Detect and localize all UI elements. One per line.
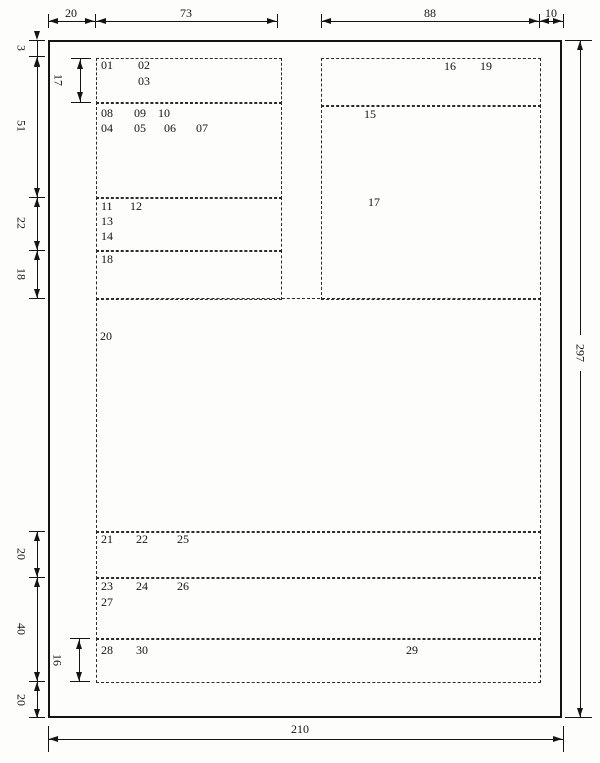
field-15-label: 15 — [364, 108, 376, 121]
tick-mark — [563, 726, 564, 752]
field-box-18 — [96, 250, 282, 300]
arrowhead — [49, 736, 58, 742]
field-25-label: 25 — [177, 533, 189, 546]
tick-mark — [71, 58, 91, 59]
field-09-label: 09 — [134, 107, 146, 120]
arrowhead — [34, 58, 40, 67]
arrowhead — [85, 18, 94, 24]
field-24-label: 24 — [136, 580, 148, 593]
field-box-16-19 — [321, 58, 541, 107]
field-02-label: 02 — [138, 59, 150, 72]
field-01-label: 01 — [101, 59, 113, 72]
field-16-label: 16 — [444, 60, 456, 73]
dim-top-left-column: 73 — [171, 7, 201, 20]
dim-bottom-line — [48, 739, 563, 740]
field-29-label: 29 — [406, 644, 418, 657]
tick-mark — [29, 40, 45, 41]
arrowhead — [34, 289, 40, 298]
field-box-01-03 — [96, 58, 282, 104]
tick-mark — [565, 717, 592, 718]
field-box-20 — [96, 298, 541, 533]
arrowhead — [34, 198, 40, 207]
arrowhead — [77, 92, 83, 101]
field-06-label: 06 — [164, 122, 176, 135]
field-11-label: 11 — [101, 200, 113, 213]
field-23-label: 23 — [101, 580, 113, 593]
dim-left-zone-40: 40 — [15, 623, 28, 635]
field-03-label: 03 — [138, 75, 150, 88]
arrowhead — [577, 708, 583, 717]
arrowhead — [267, 18, 276, 24]
dim-right-page-height: 297 — [574, 344, 587, 362]
arrowhead — [577, 41, 583, 50]
field-12-label: 12 — [130, 200, 142, 213]
field-30-label: 30 — [136, 644, 148, 657]
dim-top-line-right — [321, 21, 563, 22]
dim-right-line-upper — [580, 41, 581, 335]
field-04-label: 04 — [101, 122, 113, 135]
arrowhead — [97, 18, 106, 24]
arrowhead — [34, 682, 40, 691]
field-28-label: 28 — [101, 644, 113, 657]
field-22-label: 22 — [136, 533, 148, 546]
field-07-label: 07 — [196, 122, 208, 135]
dim-top-left-margin: 20 — [56, 7, 86, 20]
arrowhead — [76, 640, 82, 649]
arrowhead — [34, 672, 40, 681]
page-layout-diagram: 01 02 03 08 09 10 04 05 06 07 11 12 13 1… — [0, 0, 600, 763]
arrowhead — [34, 532, 40, 541]
field-box-04-10 — [96, 102, 282, 199]
dim-inner-footer-height: 16 — [51, 654, 64, 666]
field-13-label: 13 — [101, 215, 113, 228]
field-21-label: 21 — [101, 533, 113, 546]
field-14-label: 14 — [101, 230, 113, 243]
field-26-label: 26 — [177, 580, 189, 593]
tick-mark — [95, 14, 96, 28]
dim-right-line-lower — [580, 371, 581, 718]
field-05-label: 05 — [134, 122, 146, 135]
tick-mark — [70, 638, 90, 639]
field-08-label: 08 — [101, 107, 113, 120]
arrowhead — [34, 241, 40, 250]
dim-left-reference-zone: 22 — [15, 217, 28, 229]
field-box-28-30 — [96, 638, 541, 683]
field-27-label: 27 — [101, 596, 113, 609]
arrowhead — [34, 578, 40, 587]
field-20-label: 20 — [100, 330, 112, 343]
field-box-15-17 — [321, 105, 541, 300]
dim-top-line-left — [48, 21, 277, 22]
field-box-21-25 — [96, 531, 541, 579]
arrowhead — [34, 709, 40, 718]
dim-left-header-zone: 51 — [15, 120, 28, 132]
field-19-label: 19 — [480, 60, 492, 73]
dim-left-bottom-margin: 20 — [15, 694, 28, 706]
tick-mark — [70, 681, 90, 682]
arrowhead — [34, 31, 40, 40]
arrowhead — [322, 18, 331, 24]
tick-mark — [277, 14, 278, 28]
arrowhead — [76, 672, 82, 681]
dim-top-right-column: 88 — [415, 7, 445, 20]
dim-bottom-page-width: 210 — [285, 723, 315, 736]
field-10-label: 10 — [158, 107, 170, 120]
field-box-23-27 — [96, 577, 541, 640]
dim-left-subject-zone: 18 — [15, 268, 28, 280]
dim-left-top-margin: 3 — [15, 45, 28, 51]
field-box-11-14 — [96, 197, 282, 252]
tick-mark — [29, 298, 45, 299]
field-17-label: 17 — [368, 196, 380, 209]
dim-inner-letterhead-height: 17 — [52, 74, 65, 86]
tick-mark — [71, 102, 91, 103]
arrowhead — [553, 736, 562, 742]
arrowhead — [77, 60, 83, 69]
arrowhead — [34, 188, 40, 197]
dim-top-right-margin: 10 — [536, 7, 566, 20]
arrowhead — [34, 568, 40, 577]
field-18-label: 18 — [101, 253, 113, 266]
dim-left-zone-20: 20 — [15, 548, 28, 560]
arrowhead — [34, 251, 40, 260]
